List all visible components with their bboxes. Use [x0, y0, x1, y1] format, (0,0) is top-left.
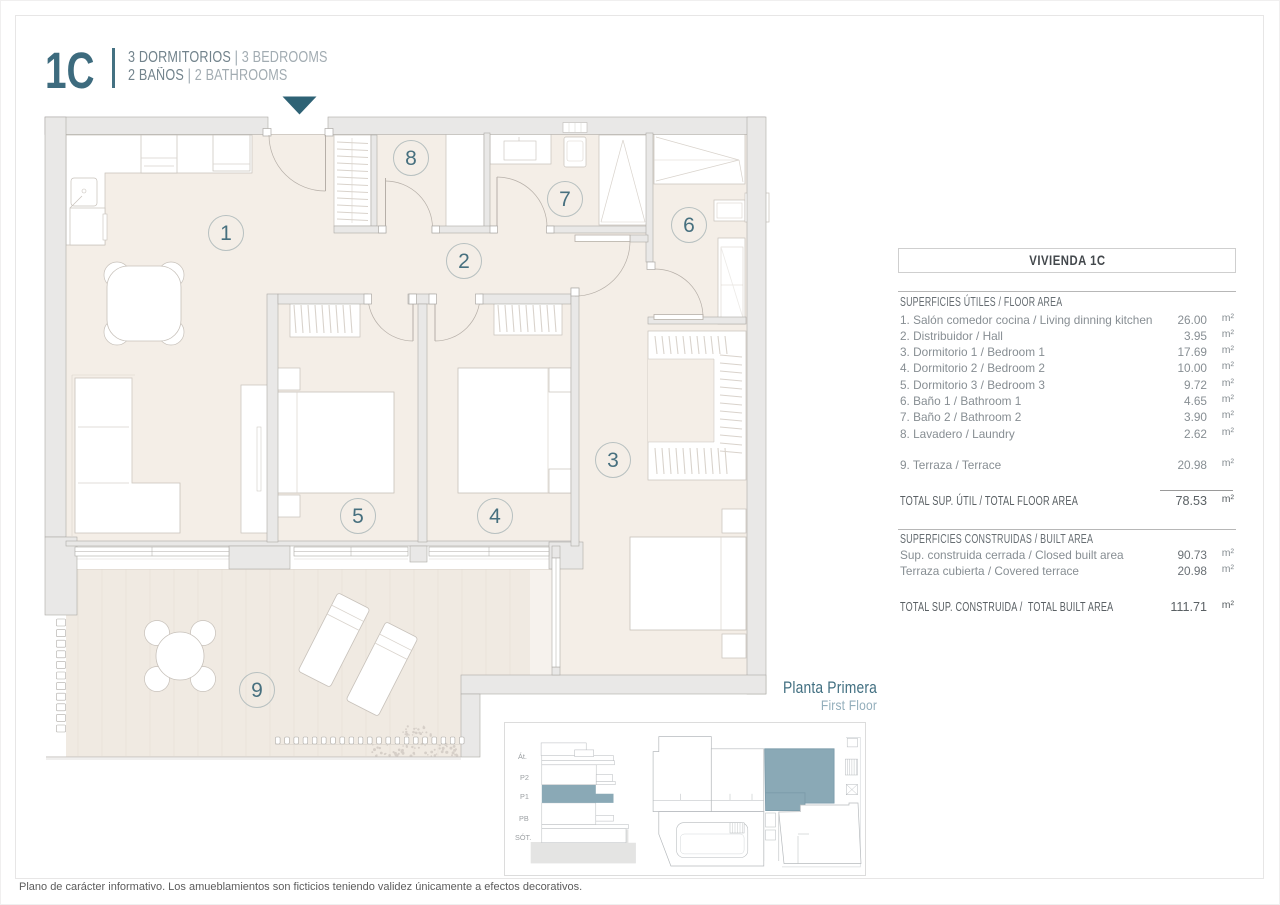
svg-text:3: 3: [607, 449, 619, 472]
svg-text:Át.: Át.: [518, 752, 527, 761]
svg-text:6: 6: [683, 214, 695, 237]
svg-text:2: 2: [458, 250, 470, 273]
svg-text:5: 5: [352, 505, 364, 528]
svg-text:4: 4: [489, 505, 501, 528]
svg-text:9: 9: [251, 679, 263, 702]
svg-text:SÓT.: SÓT.: [515, 833, 531, 842]
svg-text:7: 7: [559, 188, 571, 211]
svg-text:P1: P1: [520, 792, 529, 801]
svg-text:PB: PB: [519, 814, 529, 823]
svg-text:P2: P2: [520, 773, 529, 782]
svg-text:8: 8: [405, 147, 417, 170]
svg-text:1: 1: [220, 222, 232, 245]
